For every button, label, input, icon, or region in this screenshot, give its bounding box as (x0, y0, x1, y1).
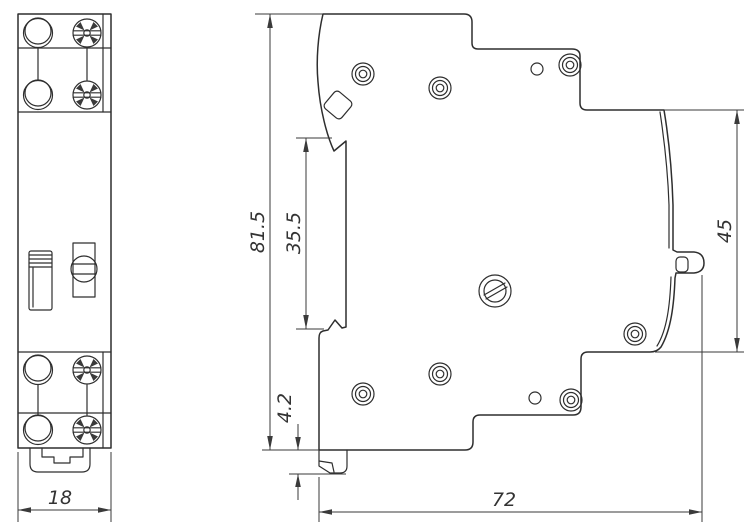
din-foot (30, 448, 90, 472)
dim-foot-4-2: 4.2 (274, 393, 346, 500)
pozidriv-screw-icon (73, 81, 101, 109)
dim-label-overall-height: 81.5 (247, 211, 269, 253)
dim-recess-35-5: 35.5 (283, 138, 332, 329)
terminal-hole-icon (24, 18, 53, 48)
dim-label-rail-face-height: 45 (714, 219, 736, 243)
toggle-lever-icon (323, 90, 354, 121)
dim-depth-72: 72 (319, 275, 702, 522)
front-view: 18 (18, 14, 111, 522)
terminal-hole-icon (24, 415, 53, 445)
selector-screw (71, 243, 97, 297)
rivet-icon (559, 54, 581, 76)
pozidriv-screw-icon (73, 19, 101, 47)
rivet-icon (429, 77, 451, 99)
dim-label-foot-height: 4.2 (274, 393, 296, 423)
rivet-icon (352, 383, 374, 405)
side-view: 81.5 35.5 45 4.2 72 (247, 14, 744, 522)
center-screw-icon (479, 275, 511, 307)
rivet-icon (352, 63, 374, 85)
mount-hole-icon (531, 63, 543, 75)
mount-hole-icon (529, 392, 541, 404)
rivet-icon (560, 389, 582, 411)
terminal-hole-icon (24, 355, 53, 385)
din-clip-lever (676, 257, 688, 272)
side-foot-tab (319, 450, 347, 473)
rivet-icon (624, 323, 646, 345)
terminal-hole-icon (24, 80, 53, 110)
drawing-canvas: 18 (0, 0, 750, 530)
toggle-switch (29, 251, 52, 310)
dimension-drawing: 18 (0, 0, 750, 530)
side-view-outline (317, 14, 704, 450)
dim-label-overall-depth: 72 (492, 489, 516, 511)
pozidriv-screw-icon (73, 416, 101, 444)
pozidriv-screw-icon (73, 356, 101, 384)
front-section-dividers (18, 48, 111, 413)
rivet-icon (429, 363, 451, 385)
dim-label-width: 18 (48, 487, 72, 509)
dim-label-recess-height: 35.5 (283, 212, 305, 254)
